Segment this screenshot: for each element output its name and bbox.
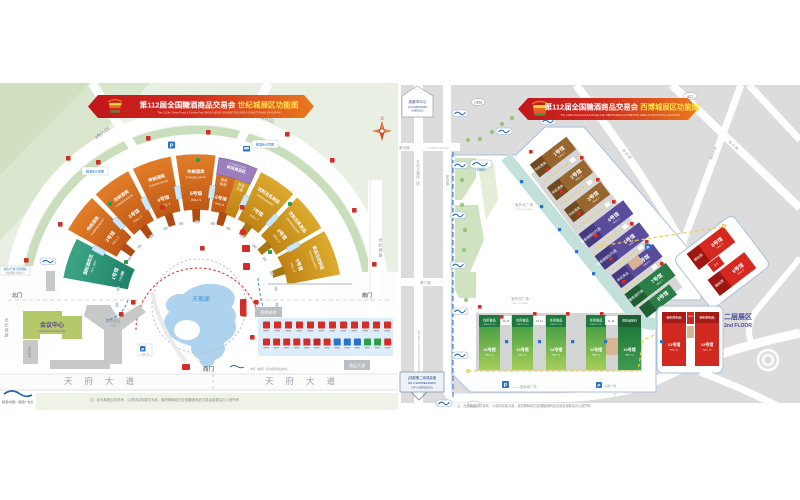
svg-text:地铁1号线·世纪城站: 地铁1号线·世纪城站 — [3, 267, 26, 271]
svg-text:1号线: 1号线 — [474, 100, 482, 105]
svg-text:北: 北 — [380, 116, 384, 121]
svg-text:出口: 出口 — [687, 94, 693, 99]
svg-text:精制茶制品: 精制茶制品 — [666, 315, 681, 320]
svg-text:P: P — [598, 383, 601, 388]
svg-text:厦门路: 厦门路 — [420, 280, 431, 285]
svg-text:11号馆: 11号馆 — [590, 346, 602, 352]
svg-text:调味品配料: 调味品配料 — [622, 318, 637, 323]
svg-text:洲际酒店: 洲际酒店 — [28, 346, 33, 358]
svg-text:(成都第二绕城高速: (成都第二绕城高速 — [408, 375, 437, 380]
svg-text:CHENGDU: CHENGDU — [411, 110, 423, 113]
svg-text:2nd FLOOR: 2nd FLOOR — [724, 323, 752, 329]
svg-text:天鹅湖: 天鹅湖 — [192, 295, 210, 303]
svg-text:南门: 南门 — [362, 292, 372, 299]
svg-text:FUZHOU ROAD: FUZHOU ROAD — [428, 146, 449, 150]
svg-text:世纪城路: 世纪城路 — [5, 317, 10, 338]
svg-text:The 112th China Food & Drinks: The 112th China Food & Drinks Fair SHIJI… — [157, 111, 281, 115]
svg-text:糖酒会示意图: 糖酒会示意图 — [256, 142, 274, 147]
svg-text:P: P — [141, 347, 144, 352]
svg-text:P: P — [504, 383, 508, 389]
svg-text:室外西广场: 室外西广场 — [511, 296, 529, 301]
svg-text:10号馆: 10号馆 — [623, 346, 635, 352]
svg-text:休闲食品: 休闲食品 — [550, 318, 563, 323]
svg-text:The 112th China Food & Drinks: The 112th China Food & Drinks Fair XIBOC… — [560, 113, 680, 117]
svg-text:厦州路: 厦州路 — [399, 145, 410, 150]
svg-text:HALL 5: HALL 5 — [191, 198, 201, 202]
svg-text:注：此线路图仅供参考，以现场实际为准。最终解释权归全国糖酒商: 注：此线路图仅供参考，以现场实际为准。最终解释权归全国糖酒商品交易会组委会办公室… — [457, 403, 591, 408]
svg-text:HALL 10: HALL 10 — [625, 354, 634, 357]
svg-text:15-14: 15-14 — [536, 319, 543, 323]
svg-text:14号馆: 14号馆 — [550, 346, 562, 352]
svg-text:第112届全国糖酒商品交易会 西博城展区功能图: 第112届全国糖酒商品交易会 西博城展区功能图 — [545, 103, 699, 112]
svg-text:16号馆: 16号馆 — [483, 346, 495, 352]
svg-text:SNACK FOOD: SNACK FOOD — [484, 323, 497, 326]
svg-text:HALL 13: HALL 13 — [703, 349, 712, 352]
svg-text:CONVENTION CENTER: CONVENTION CENTER — [39, 330, 66, 333]
svg-text:WEST SQUARE: WEST SQUARE — [512, 302, 529, 305]
svg-text:西博城站: 西博城站 — [476, 168, 486, 172]
svg-text:会议中心: 会议中心 — [40, 321, 64, 329]
svg-text:中国（成都）·世纪城国际会展中心: 中国（成都）·世纪城国际会展中心 — [250, 367, 289, 371]
svg-text:SNACK FOOD: SNACK FOOD — [590, 323, 603, 326]
svg-text:HALL 16: HALL 16 — [485, 354, 494, 357]
svg-text:图例说明: 图例说明 — [261, 309, 277, 315]
svg-text:13-12: 13-12 — [688, 316, 694, 318]
svg-text:NORTH SQUARE: NORTH SQUARE — [515, 208, 533, 211]
svg-text:凡歌广场: 凡歌广场 — [604, 383, 616, 388]
svg-text:SNACK FOOD: SNACK FOOD — [517, 323, 530, 326]
svg-text:棠州路: 棠州路 — [445, 174, 449, 186]
svg-text:成运大道: 成运大道 — [349, 362, 365, 368]
svg-text:精制茶制品: 精制茶制品 — [699, 315, 714, 320]
svg-text:CHINESE BAIJIU: CHINESE BAIJIU — [186, 175, 206, 179]
svg-text:休闲食品: 休闲食品 — [590, 318, 603, 323]
svg-text:注：此布局图仅供参考，以现场实际展位为准，最终解释权归全国糖: 注：此布局图仅供参考，以现场实际展位为准，最终解释权归全国糖酒商品交易会组委会办… — [90, 397, 240, 402]
svg-text:HALL 11: HALL 11 — [592, 354, 601, 357]
svg-text:二层展区: 二层展区 — [724, 312, 752, 321]
svg-text:天府大道: 天府大道 — [64, 376, 146, 386]
svg-text:(在建): (在建) — [110, 324, 117, 328]
svg-text:11-10: 11-10 — [608, 319, 615, 323]
svg-text:15号馆: 15号馆 — [516, 346, 528, 352]
svg-text:16-15: 16-15 — [503, 319, 510, 323]
svg-text:休闲食品: 休闲食品 — [516, 318, 529, 323]
svg-text:锦绣酒店: 锦绣酒店 — [106, 318, 121, 323]
svg-text:成都市中心: 成都市中心 — [409, 99, 427, 104]
svg-text:西门: 西门 — [203, 365, 215, 373]
svg-text:HALL 14: HALL 14 — [552, 354, 561, 357]
svg-text:休闲食品: 休闲食品 — [483, 318, 496, 323]
svg-text:13号馆: 13号馆 — [701, 341, 713, 347]
svg-text:OF CHENGDU): OF CHENGDU) — [411, 386, 432, 390]
svg-text:NO.2 EXPRESSWAY: NO.2 EXPRESSWAY — [408, 381, 437, 385]
svg-text:天府大道: 天府大道 — [265, 376, 347, 386]
svg-text:HALL 15: HALL 15 — [518, 354, 527, 357]
svg-text:糖酒(成都) | 糖酒广告业: 糖酒(成都) | 糖酒广告业 — [2, 399, 33, 404]
svg-text:12号馆: 12号馆 — [668, 341, 680, 347]
svg-text:糖酒会示意图: 糖酒会示意图 — [86, 169, 104, 174]
svg-text:天府大道南二段: 天府大道南二段 — [415, 160, 420, 186]
svg-text:P: P — [170, 143, 174, 149]
svg-text:室外北广场: 室外北广场 — [515, 202, 533, 207]
svg-text:SNACK FOOD: SNACK FOOD — [550, 323, 563, 326]
svg-text:北门: 北门 — [12, 292, 22, 299]
svg-text:P: P — [647, 245, 650, 250]
svg-text:第112届全国糖酒商品交易会 世纪城展区功能图: 第112届全国糖酒商品交易会 世纪城展区功能图 — [140, 100, 299, 110]
svg-text:HALL 12: HALL 12 — [670, 349, 679, 352]
svg-text:—— 宜家南广场: —— 宜家南广场 — [512, 384, 537, 389]
svg-text:世纪城路: 世纪城路 — [379, 237, 384, 258]
